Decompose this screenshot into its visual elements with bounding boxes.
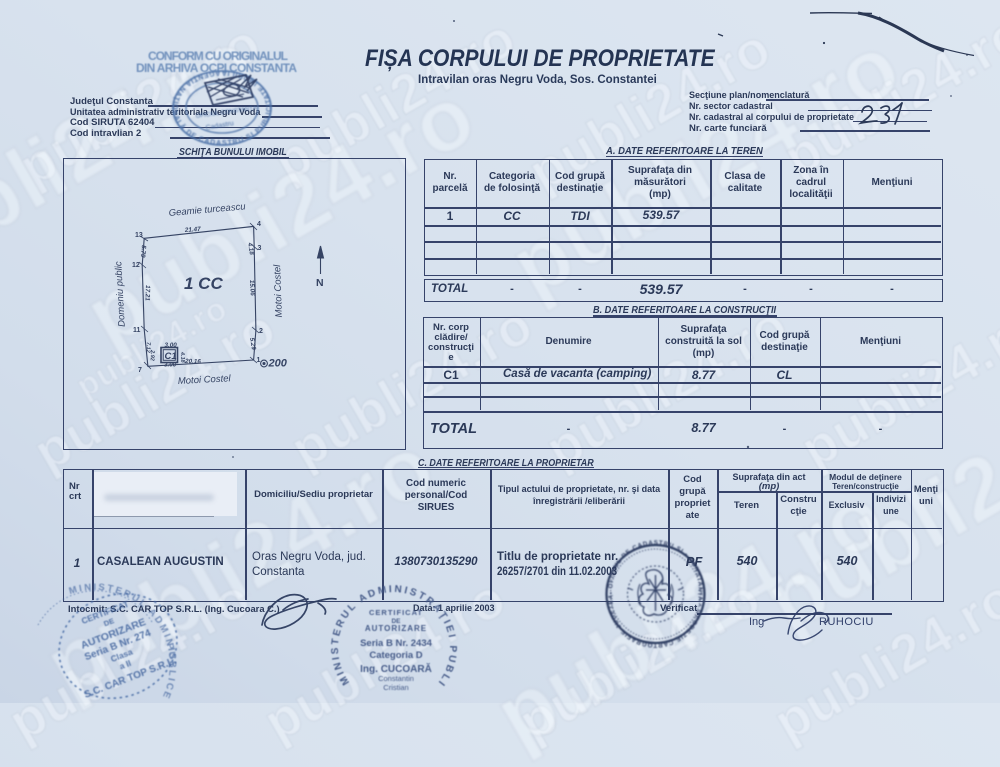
svg-text:OFICIUL CONSTANŢA: OFICIUL CONSTANŢA [195,105,257,120]
svg-text:2.92: 2.92 [149,349,155,361]
svg-text:3: 3 [258,245,262,252]
svg-text:1 CC: 1 CC [184,274,223,293]
svg-text:200: 200 [268,358,288,370]
svg-text:3.00: 3.00 [164,362,177,369]
svg-text:21.47: 21.47 [184,226,202,234]
svg-text:Categoria D: Categoria D [369,650,422,661]
svg-text:3.00: 3.00 [165,342,178,349]
svg-text:11: 11 [133,327,141,334]
svg-text:Motoi Costel: Motoi Costel [178,373,232,387]
svg-text:15.06: 15.06 [248,280,256,297]
svg-text:C1: C1 [165,351,177,362]
svg-text:Cadastru: Cadastru [205,120,234,132]
svg-text:DIN ARHIVA OCPI CONSTANTA: DIN ARHIVA OCPI CONSTANTA [136,61,297,75]
svg-text:• OFICIUL DE CADASTRU SI • CON: • OFICIUL DE CADASTRU SI • CONSTANTA • G… [0,0,704,649]
svg-text:CERTIFICAT: CERTIFICAT [369,608,423,617]
svg-text:Seria B Nr. 2434: Seria B Nr. 2434 [360,638,433,649]
svg-text:20.16: 20.16 [184,358,201,366]
svg-text:2: 2 [259,328,263,335]
svg-text:Cristian: Cristian [383,683,408,692]
svg-text:Motoi Costel: Motoi Costel [272,264,285,318]
svg-text:Domeniu public: Domeniu public [113,261,127,327]
svg-text:12: 12 [132,262,140,269]
svg-text:4: 4 [257,221,261,228]
svg-text:1: 1 [257,357,261,364]
svg-text:MINISTERUL ADMINISTRAŢIEI PUBL: MINISTERUL ADMINISTRAŢIEI PUBLICE [0,0,458,689]
svg-text:MINISTERUL ADMINISTRA: MINISTERUL ADMINISTRA [0,0,178,662]
svg-text:5.29: 5.29 [248,337,257,351]
svg-text:5.79: 5.79 [139,245,147,258]
svg-text:17.21: 17.21 [143,285,151,301]
svg-text:AUTORIZARE: AUTORIZARE [365,624,427,633]
svg-text:Constantin: Constantin [378,674,414,683]
svg-text:13: 13 [135,232,143,239]
svg-text:7: 7 [138,367,142,374]
svg-text:4.18: 4.18 [246,241,255,256]
svg-text:Geamie turceascu: Geamie turceascu [168,201,246,219]
svg-text:N: N [316,277,324,289]
svg-text:4.18: 4.18 [179,351,185,364]
